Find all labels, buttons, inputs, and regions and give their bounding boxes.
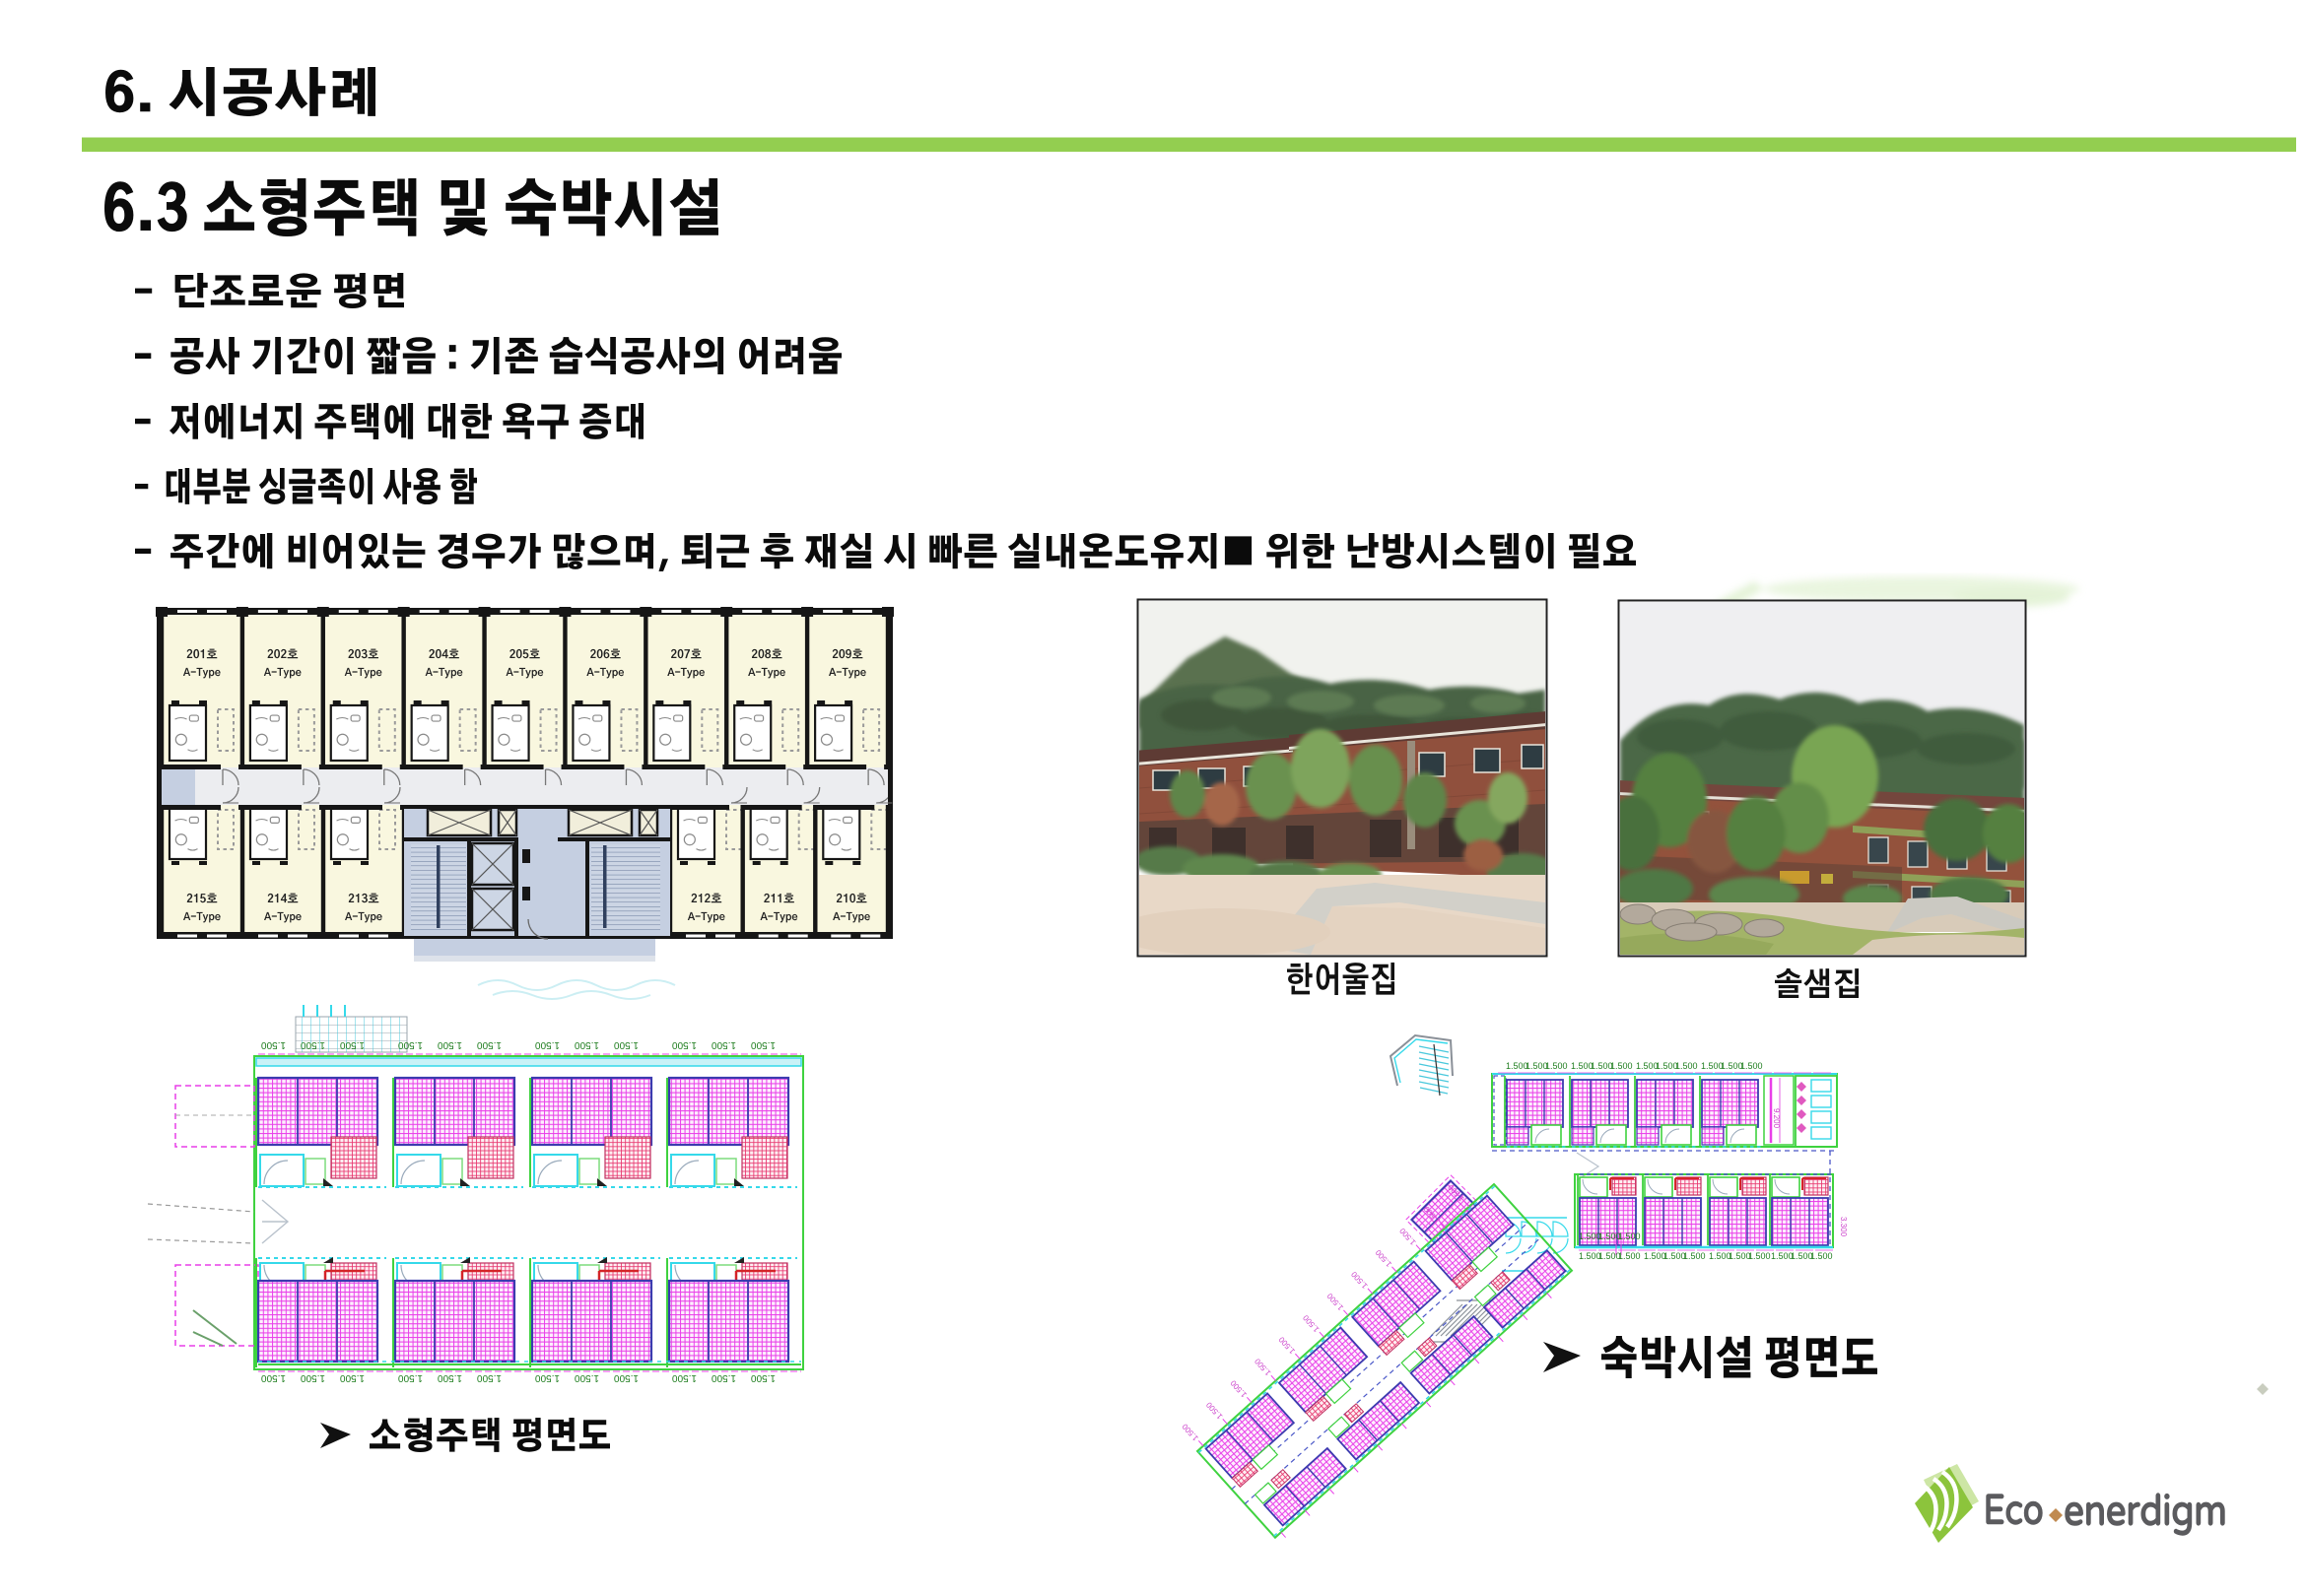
svg-text:1.500: 1.500 — [477, 1372, 502, 1383]
svg-text:1.500: 1.500 — [301, 1039, 325, 1050]
svg-text:1.500: 1.500 — [614, 1372, 639, 1383]
svg-text:1.500: 1.500 — [1253, 1357, 1272, 1377]
svg-text:1.500: 1.500 — [751, 1039, 776, 1050]
svg-text:1.500: 1.500 — [340, 1372, 365, 1383]
svg-text:1.500: 1.500 — [614, 1039, 639, 1050]
svg-text:1.500: 1.500 — [712, 1039, 736, 1050]
svg-text:1.500: 1.500 — [1204, 1400, 1224, 1421]
svg-text:1.500: 1.500 — [1740, 1061, 1763, 1071]
svg-text:1.500: 1.500 — [1610, 1061, 1633, 1071]
svg-text:1.500: 1.500 — [261, 1039, 286, 1050]
svg-text:1.500: 1.500 — [1229, 1378, 1249, 1399]
svg-text:1.500: 1.500 — [340, 1039, 365, 1050]
svg-text:1.500: 1.500 — [1301, 1313, 1321, 1334]
svg-text:1.500: 1.500 — [575, 1039, 599, 1050]
svg-text:1.500: 1.500 — [1180, 1422, 1199, 1442]
svg-text:1.500: 1.500 — [438, 1039, 462, 1050]
svg-text:1.500: 1.500 — [535, 1039, 560, 1050]
svg-text:1.500: 1.500 — [751, 1372, 776, 1383]
svg-text:3.300: 3.300 — [1839, 1217, 1848, 1237]
svg-text:1.500: 1.500 — [1374, 1247, 1393, 1268]
svg-text:1.500: 1.500 — [1349, 1269, 1369, 1290]
svg-text:1.500: 1.500 — [1277, 1335, 1297, 1356]
svg-text:1.500: 1.500 — [261, 1372, 286, 1383]
svg-text:1.500: 1.500 — [1675, 1061, 1698, 1071]
svg-text:1.500: 1.500 — [712, 1372, 736, 1383]
svg-text:1.500: 1.500 — [438, 1372, 462, 1383]
svg-text:1.500: 1.500 — [1545, 1061, 1568, 1071]
svg-text:1.500: 1.500 — [535, 1372, 560, 1383]
svg-text:1.500: 1.500 — [1810, 1251, 1833, 1261]
svg-text:1.500: 1.500 — [672, 1372, 697, 1383]
svg-text:1.500: 1.500 — [301, 1372, 325, 1383]
svg-text:1.500: 1.500 — [1325, 1292, 1345, 1312]
svg-text:1.500: 1.500 — [575, 1372, 599, 1383]
svg-text:1.500: 1.500 — [398, 1372, 423, 1383]
svg-text:1.500: 1.500 — [1683, 1251, 1706, 1261]
svg-text:1.500: 1.500 — [1618, 1231, 1641, 1241]
svg-text:9.200: 9.200 — [1772, 1108, 1781, 1129]
svg-text:1.500: 1.500 — [398, 1039, 423, 1050]
svg-text:1.500: 1.500 — [477, 1039, 502, 1050]
svg-text:1.500: 1.500 — [672, 1039, 697, 1050]
svg-text:1.500: 1.500 — [1748, 1251, 1771, 1261]
svg-text:1.500: 1.500 — [1618, 1251, 1641, 1261]
